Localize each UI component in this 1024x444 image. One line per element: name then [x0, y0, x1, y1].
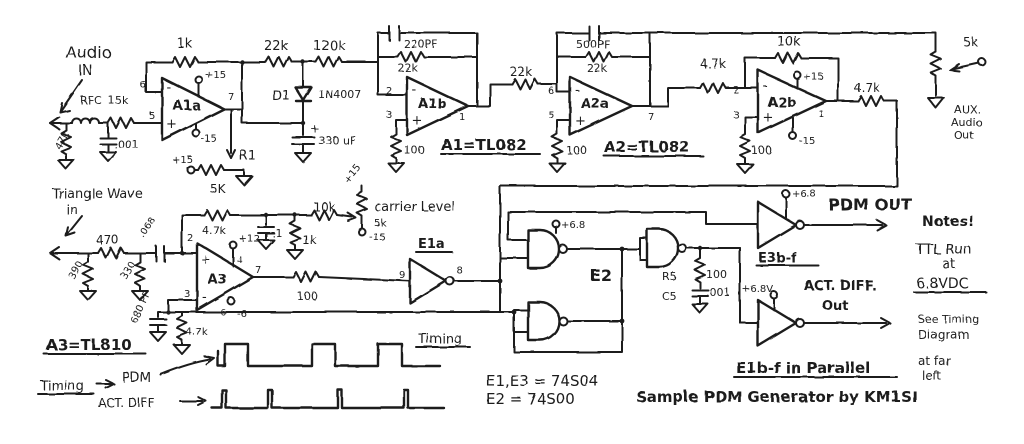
resistor-120k — [316, 57, 342, 67]
label-r5-val: 100 — [706, 268, 727, 281]
ground-symbol — [258, 240, 274, 249]
label-a3-plus: + — [201, 253, 211, 267]
opamp-a1b: 220PF 22k 2 3 - + A1b 1 100 A1=TL082 22k — [378, 26, 557, 172]
label-10k: 10k — [777, 35, 802, 50]
ground-symbol — [58, 160, 74, 169]
inverter-bubble — [796, 319, 804, 327]
label-e3bf: E3b-f — [758, 251, 797, 266]
label-a3-vminus: -6 — [237, 309, 247, 320]
resistor-1k-feedback — [172, 57, 198, 67]
resistor-4.7k-feedback — [204, 210, 230, 220]
pdm-wave-arrow — [160, 356, 214, 374]
inverter-bubble — [796, 221, 804, 229]
interstage-network: 22k 120k D1 1N4007 + 330 uF — [264, 39, 378, 162]
label-a1a: A1a — [173, 99, 201, 114]
pot-5k — [931, 52, 941, 96]
label-see-timing: See Timing — [918, 313, 979, 326]
ground-symbol — [100, 152, 116, 161]
label-120k: 120k — [313, 39, 346, 54]
ground-symbol — [388, 163, 404, 172]
label-a2b-plus: + — [763, 111, 774, 126]
label-pdm-wave: PDM — [122, 371, 151, 386]
inverter-e3-triangle — [758, 202, 796, 248]
notes-block: Notes! TTL Run at 6.8VDC See Timing Diag… — [914, 214, 986, 383]
label-a1b: A1b — [418, 97, 446, 112]
label-carrier-vminus: -15 — [369, 232, 385, 243]
label-a1b-pin3: 3 — [386, 110, 392, 121]
nand-bubble — [678, 244, 686, 252]
label-r1-vplus: +15 — [172, 155, 193, 166]
pdm-waveform — [218, 344, 440, 366]
label-at: at — [942, 257, 955, 272]
label-tri2: in — [66, 203, 78, 218]
label-a1a-pin7: 7 — [228, 92, 234, 103]
ground-symbol — [737, 164, 753, 173]
footer-captions: E1b-f in Parallel Sample PDM Generator b… — [416, 332, 917, 408]
label-a1b-plus: + — [412, 114, 423, 129]
nand-gate-e2a — [528, 230, 559, 268]
label-e1a: E1a — [418, 237, 445, 252]
r1-pot-resistor — [198, 165, 224, 175]
carrier-level-pot: +15 carrier Level 5k -15 — [342, 163, 455, 243]
triangle-wave-input: Triangle Wave in 470 390 330 .068 — [50, 187, 197, 300]
inverter-e1a: E1a 9 8 — [399, 237, 500, 303]
opamp-a2a: 500PF 22k 6 5 - + A2a 7 100 A2=TL082 — [548, 26, 936, 172]
pdm-out-arrow — [804, 220, 886, 230]
label-a1a-pin5: 5 — [149, 111, 155, 122]
label-500pf: 500PF — [576, 38, 610, 51]
label-a2a-plus: + — [575, 114, 586, 129]
label-a2b-minus: - — [763, 79, 768, 94]
label-act-diff: ACT. DIFF. — [804, 279, 876, 294]
label-a2b-pin2: 2 — [733, 85, 739, 96]
label-timing-mid: Timing — [417, 332, 462, 347]
resistor-r5 — [695, 248, 705, 288]
label-a1a-plus: + — [166, 117, 177, 132]
label-e1bf-parallel: E1b-f in Parallel — [736, 359, 870, 377]
label-r1-value: 5K — [210, 182, 227, 196]
label-a3-pin2: 2 — [187, 233, 193, 244]
arrow-to-carrier-pot — [337, 213, 356, 221]
label-timing-left: Timing — [39, 379, 84, 394]
label-a1a-minus: - — [166, 80, 171, 95]
label-a3-vplus: +12 — [239, 234, 260, 245]
wire-to-r1-wiper — [227, 109, 235, 158]
label-a2a-pin7: 7 — [648, 112, 654, 123]
act-wave-arrow — [180, 397, 206, 405]
resistor-22k — [266, 57, 292, 67]
label-15k: 15k — [108, 94, 129, 107]
label-pdm-vcc: +6.8 — [792, 189, 816, 200]
resistor-10k-feedback — [775, 53, 801, 63]
label-a3-4.7k-gnd: 4.7k — [186, 327, 208, 338]
label-aux2: Audio — [951, 116, 983, 129]
label-act-wave: ACT. DIFF — [98, 396, 155, 410]
label-a2b-pin3: 3 — [733, 110, 739, 121]
resistor-4.7k-series — [700, 83, 726, 93]
label-e1a-pin8: 8 — [456, 265, 462, 276]
label-a2b-vplus: +15 — [803, 72, 824, 83]
resistor-470 — [98, 248, 124, 258]
inverter-e1b-triangle — [758, 300, 796, 346]
label-22k: 22k — [264, 39, 289, 54]
label-tri1: Triangle Wave — [51, 187, 143, 202]
label-c5-val: .001 — [706, 286, 731, 299]
label-a3-minus: - — [202, 290, 207, 305]
nand-bubble — [559, 245, 567, 253]
resistor-1k-gnd — [290, 215, 300, 250]
label-a2b-4.7k-out: 4.7k — [854, 81, 880, 95]
label-a3-point1: .1 — [272, 227, 283, 240]
label-a3-pin6: 6 — [220, 308, 226, 318]
nand-bubble — [559, 317, 567, 325]
minus15-terminal — [790, 133, 797, 140]
ground-symbol — [692, 304, 708, 313]
label-aux-5k: 5k — [963, 35, 978, 49]
ground-symbol — [549, 163, 565, 172]
label-aux1: AUX. — [954, 103, 981, 116]
minus6-terminal — [228, 298, 235, 305]
label-a2b-100: 100 — [751, 144, 772, 157]
minus15-terminal — [359, 229, 366, 236]
label-d1: D1 — [272, 89, 290, 104]
resistor-330 — [135, 253, 145, 291]
nand-gate-e2b — [528, 302, 559, 340]
pdm-out-buffer: +6.8 PDM OUT E3b-f — [756, 189, 912, 266]
label-a1b-pin2: 2 — [386, 86, 392, 97]
ground-symbol — [287, 250, 303, 259]
comparator-a3: 2 3 + - A3 +12 4 6 -6 7 4.7k .1 1k 10k 1… — [44, 200, 516, 354]
cap-220pf — [378, 26, 477, 95]
label-act-vcc: +6.8V — [742, 284, 773, 295]
label-a1a-vplus: +15 — [205, 70, 226, 81]
resistor-100-out — [293, 272, 319, 282]
label-1k: 1k — [177, 37, 193, 52]
label-a1a-vminus: -15 — [201, 134, 217, 145]
label-a3-4.7k: 4.7k — [202, 224, 226, 237]
pot-carrier — [357, 186, 367, 228]
opamp-a2b: 4.7k 10k +15 -15 2 3 - + A2b 1 100 4.7k — [700, 35, 897, 173]
ground-symbol — [80, 291, 96, 300]
plus15-terminal — [794, 72, 801, 79]
label-a3-10k: 10k — [313, 200, 335, 214]
ground-symbol — [174, 345, 190, 354]
label-e1a-pin9: 9 — [399, 270, 405, 281]
label-a3-pin7: 7 — [255, 265, 261, 276]
label-e2: E2 — [590, 266, 612, 285]
label-a1b-22k: 22k — [398, 62, 419, 75]
label-at-far: at far — [918, 354, 950, 368]
label-068: .068 — [136, 215, 158, 240]
audio-in-arrow — [60, 80, 82, 112]
ground-symbol — [236, 176, 252, 185]
label-001: .001 — [114, 138, 139, 151]
aux-wiper-terminal — [979, 59, 986, 66]
rfc-inductor — [72, 119, 99, 124]
label-e2-vcc: +6.8 — [561, 220, 585, 231]
label-68vdc: 6.8VDC — [916, 276, 969, 292]
label-a2a-minus: - — [575, 83, 580, 98]
timing-arrow — [97, 380, 114, 388]
pot-wiper-arrow — [950, 63, 979, 71]
label-left: left — [922, 369, 942, 383]
act-diff-waveform — [212, 390, 444, 408]
label-carrier-vplus: +15 — [342, 163, 364, 186]
label-caption: Sample PDM Generator by KM1SI — [636, 388, 917, 406]
resistor-15k — [108, 118, 134, 128]
act-diff-out-arrow — [804, 318, 890, 328]
label-a3-1k: 1k — [302, 233, 317, 247]
label-diagram: Diagram — [918, 328, 970, 342]
resistor-390 — [83, 253, 93, 291]
label-330: 330 — [119, 259, 138, 281]
label-a2b-vminus: -15 — [799, 136, 815, 147]
resistor-4.7k-out — [858, 96, 884, 106]
cap-680pf — [150, 312, 168, 332]
inverter-e1a-triangle — [410, 259, 446, 303]
label-act-out: Out — [822, 299, 849, 314]
label-a2b-4.7k-in: 4.7k — [700, 57, 726, 71]
nand-gate-e2c — [647, 229, 678, 267]
resistor-22k-series — [512, 79, 538, 89]
label-1n4007: 1N4007 — [318, 88, 361, 101]
label-r5: R5 — [662, 270, 677, 283]
label-a1a-pin6: 6 — [140, 80, 146, 91]
cap-330uf — [292, 137, 314, 153]
ground-symbol — [295, 153, 311, 162]
label-c5: C5 — [662, 290, 677, 303]
plus15-terminal — [196, 77, 203, 84]
latch-cross-coupling — [514, 249, 622, 352]
diode-d1 — [295, 87, 311, 101]
vcc-terminal — [553, 221, 560, 228]
label-audio: Audio — [66, 43, 111, 62]
label-carrier-5k: 5k — [374, 218, 386, 229]
r1-pot: +15 R1 5K — [172, 149, 256, 196]
label-a1b-minus: - — [412, 83, 417, 98]
tri-in-arrow — [66, 216, 82, 236]
label-a2a: A2a — [581, 97, 609, 112]
cap-068 — [156, 246, 197, 261]
label-aux3: Out — [954, 129, 975, 142]
label-ttl-run: TTL Run — [915, 242, 972, 258]
label-a1-eq: A1=TL082 — [441, 136, 527, 154]
label-in: IN — [78, 63, 93, 79]
label-pdm-out: PDM OUT — [828, 195, 912, 214]
label-a3-pin4: 4 — [237, 256, 243, 266]
label-a3-100: 100 — [297, 290, 318, 303]
label-e1e3-eq: E1,E3 = 74S04 — [486, 372, 599, 390]
aux-out-terminal — [928, 98, 944, 108]
label-e2-eq: E2 = 74S00 — [486, 390, 575, 408]
minus15-terminal — [193, 130, 200, 137]
schematic-canvas: Audio IN RFC 15k 47k .001 6 5 7 - + A1a … — [0, 0, 1024, 444]
nand-latch-e2: E2 +6.8 R5 100 C5 .001 — [500, 212, 758, 352]
label-680pf: 680 PF — [129, 290, 153, 326]
label-r1: R1 — [239, 149, 256, 164]
label-a2a-pin5: 5 — [548, 110, 554, 121]
vcc-terminal — [783, 191, 790, 198]
label-a2b: A2b — [768, 96, 796, 111]
inverter-bubble — [446, 277, 454, 285]
label-a2a-22k: 22k — [587, 62, 608, 75]
label-a3-pin3: 3 — [184, 289, 190, 300]
label-a2a-100: 100 — [566, 144, 587, 157]
schematic-page: Audio IN RFC 15k 47k .001 6 5 7 - + A1a … — [0, 0, 1024, 444]
plus12-terminal — [230, 242, 237, 249]
label-a2b-pin1: 1 — [818, 109, 824, 120]
label-a2-eq: A2=TL082 — [604, 138, 690, 156]
label-rfc: RFC — [80, 94, 102, 107]
label-a3: A3 — [208, 273, 227, 288]
label-220pf: 220PF — [404, 38, 438, 51]
label-470: 470 — [96, 233, 119, 247]
label-22k-series: 22k — [510, 65, 532, 79]
label-a1b-100: 100 — [404, 144, 425, 157]
label-a1b-pin1: 1 — [459, 112, 465, 123]
label-a2a-pin6: 6 — [548, 86, 554, 97]
act-diff-out-buffer: +6.8V ACT. DIFF. Out — [742, 279, 890, 346]
label-carrier: carrier Level — [374, 200, 455, 215]
label-390: 390 — [67, 259, 86, 281]
ground-symbol — [150, 332, 166, 341]
label-a3-eq: A3=TL810 — [46, 336, 132, 354]
label-330uf: 330 uF — [318, 134, 356, 147]
plus15-terminal — [188, 167, 195, 174]
label-notes: Notes! — [922, 214, 974, 230]
